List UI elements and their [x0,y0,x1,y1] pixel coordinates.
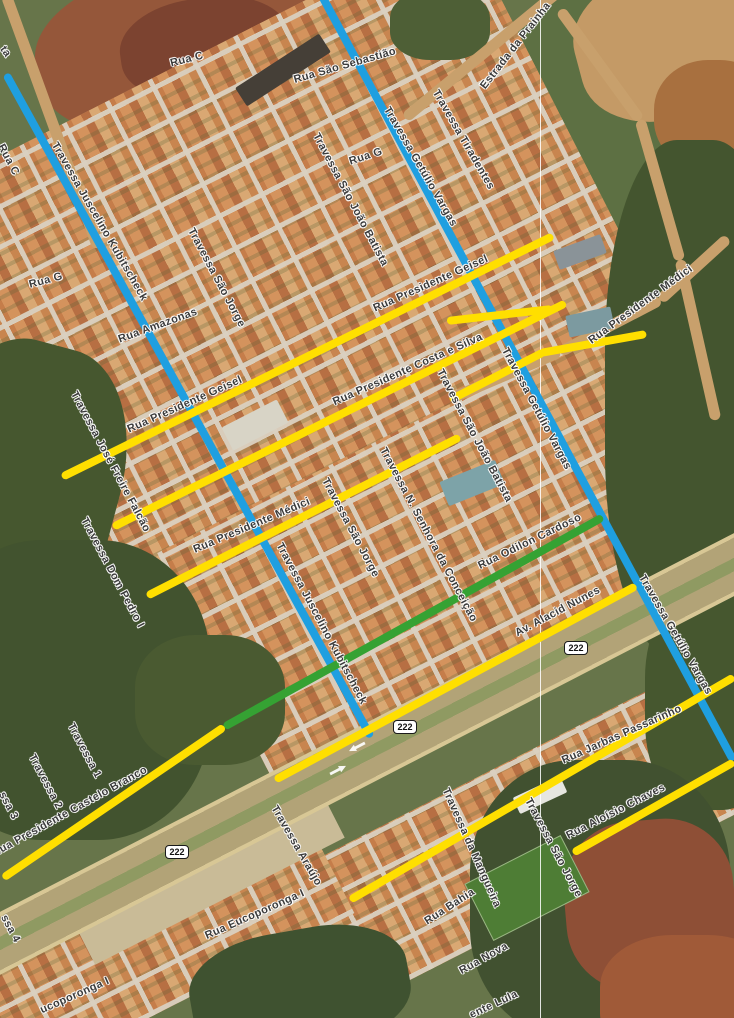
street-label: Rua Bahia [423,887,477,927]
street-label: Travessa Dom Pedro I [78,516,145,630]
street-label: Travessa Juscelino Kubitscheck [49,141,149,304]
street-label: Travessa Tiradentes [430,88,496,192]
street-label: Travessa José Freire Falcão [68,390,152,534]
street-label: Rua Amazonas [117,307,199,346]
street-label: Travessa 1 [65,722,103,780]
street-label: Rua Presidente Costa e Silva [331,332,484,408]
street-label: Rua Eucoporonga I [204,888,307,942]
street-label: Av. Alacid Nunes [514,585,603,639]
street-label: ucoporonga I [39,976,112,1016]
street-label: Rua Jarbas Passarinho [560,704,683,767]
street-label: ta [0,45,13,60]
route-shield-222: 222 [393,720,417,734]
street-label: Rua C [0,143,21,178]
street-label: Travessa N. Senhora da Conceição [377,446,479,624]
street-label: Travessa Getúlio Vargas [636,573,714,697]
street-label: Rua Presidente Geisel [126,375,244,436]
street-label: Rua G [348,146,384,167]
street-label: Rua Presidente Médici [587,264,695,347]
street-label: Rua G [28,271,64,291]
street-label: Rua Presidente Médici [192,496,312,555]
street-label: Rua Presidente Castelo Branco [0,765,149,860]
street-label: Travessa São Jorge [522,797,584,900]
street-label: Rua Odilon Cardoso [477,512,584,572]
street-label: Travessa Getúlio Vargas [499,346,573,472]
street-label: Travessa São João Batista [434,368,514,505]
street-label: Rua Nova [458,941,511,977]
street-label: Rua C [169,51,204,70]
route-shield-222: 222 [165,845,189,859]
street-label: Travessa São Jorge [319,477,381,580]
label-layer: taRua CRua São SebastiãoEstrada da Prain… [0,0,734,1018]
route-shield-222: 222 [564,641,588,655]
street-label: Travessa 2 [26,753,64,811]
street-label: Travessa Araújo [269,804,324,888]
street-label: ente Lula [468,989,520,1018]
map-viewport[interactable]: taRua CRua São SebastiãoEstrada da Prain… [0,0,734,1018]
street-label: ssa 3 [0,790,20,821]
street-label: Rua São Sebastião [293,46,398,86]
street-label: ssa 4 [0,913,22,944]
street-label: Travessa Juscelino Kubitscheck [274,541,369,706]
street-label: Estrada da Prainha [479,1,553,92]
street-label: Rua Aloísio Chaves [565,782,668,842]
